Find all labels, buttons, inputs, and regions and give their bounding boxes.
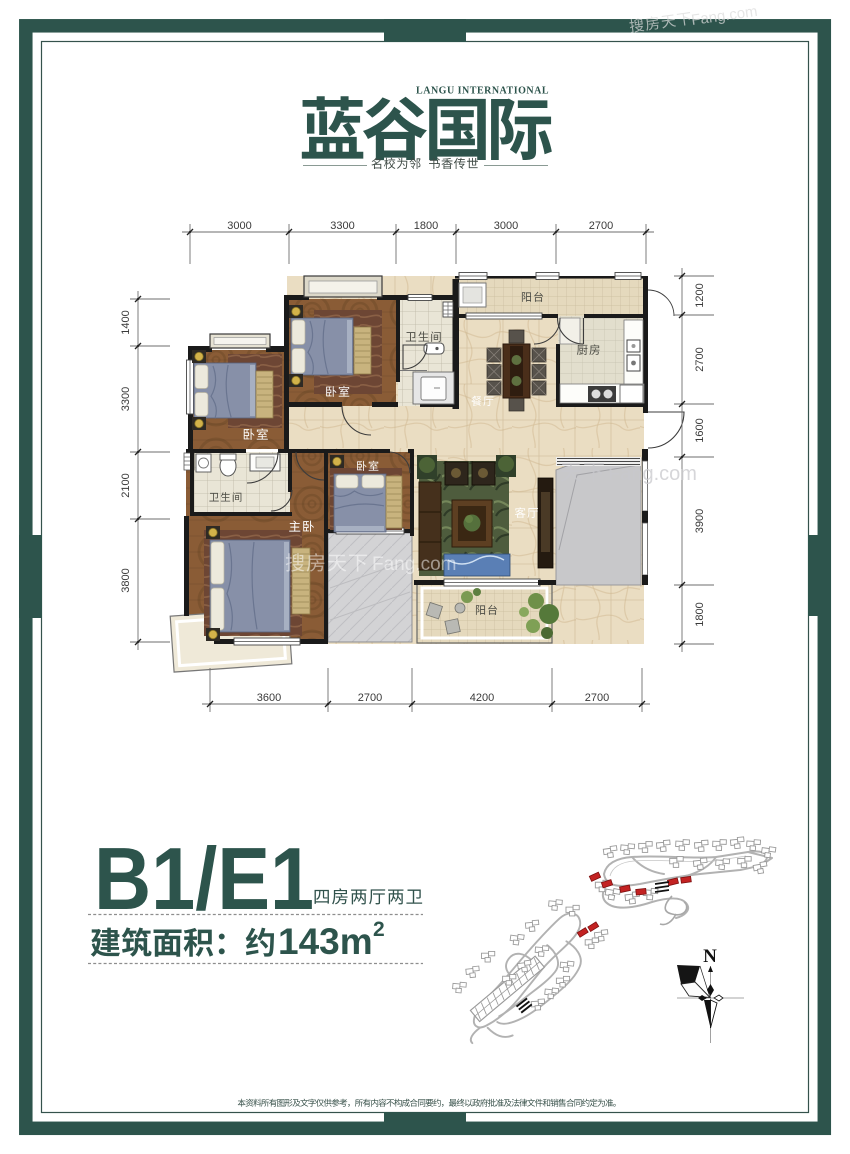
svg-text:4200: 4200: [470, 692, 494, 704]
svg-text:3800: 3800: [120, 568, 132, 592]
svg-text:2700: 2700: [585, 692, 609, 704]
svg-text:Fang.com: Fang.com: [372, 554, 456, 575]
svg-text:1200: 1200: [694, 283, 706, 307]
svg-text:2: 2: [373, 918, 385, 941]
svg-text:2100: 2100: [120, 473, 132, 497]
svg-text:LANGU INTERNATIONAL: LANGU INTERNATIONAL: [416, 86, 549, 97]
svg-text:3900: 3900: [694, 509, 706, 533]
svg-text:2700: 2700: [694, 347, 706, 371]
svg-text:3600: 3600: [257, 692, 281, 704]
svg-text:143m: 143m: [278, 921, 373, 962]
svg-text:1800: 1800: [414, 220, 438, 232]
svg-text:3300: 3300: [120, 387, 132, 411]
svg-text:B1/E1: B1/E1: [94, 829, 314, 928]
svg-text:2700: 2700: [589, 220, 613, 232]
svg-text:2700: 2700: [358, 692, 382, 704]
svg-text:1800: 1800: [694, 602, 706, 626]
svg-text:3300: 3300: [330, 220, 354, 232]
svg-text:1600: 1600: [694, 418, 706, 442]
svg-text:N: N: [703, 946, 717, 967]
svg-text:3000: 3000: [494, 220, 518, 232]
svg-text:3000: 3000: [227, 220, 251, 232]
svg-text:1400: 1400: [120, 310, 132, 334]
svg-text:Fang.com: Fang.com: [608, 463, 697, 485]
